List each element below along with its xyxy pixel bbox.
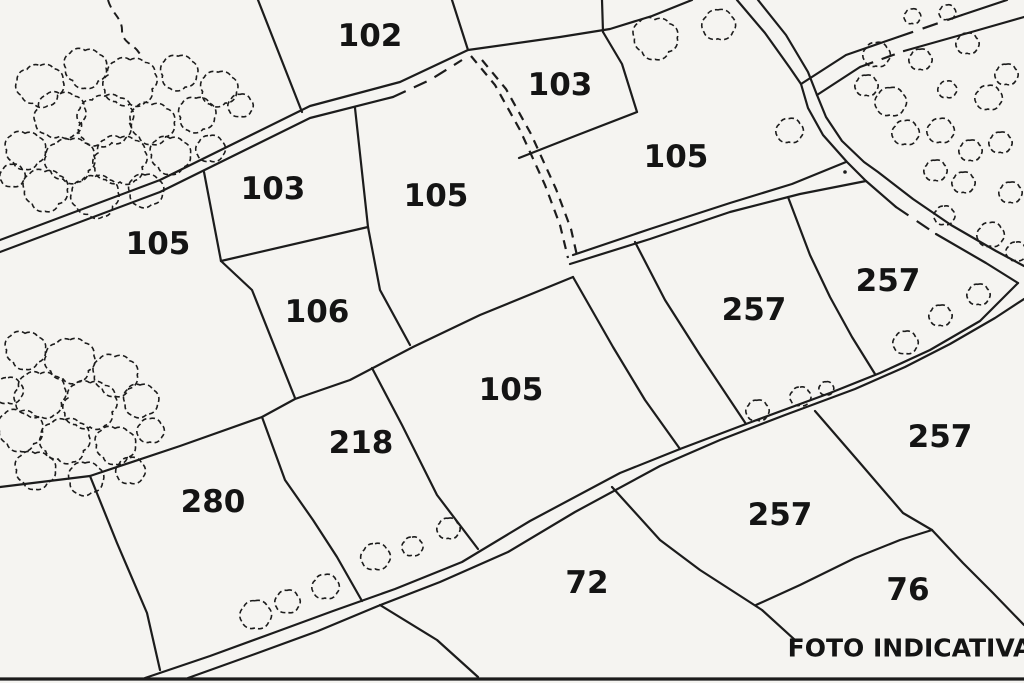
tree-bush-icon [39,418,90,464]
parcel-boundary-line [380,605,478,677]
cadastral-map-drawing: 1021031051031051052572571061052182572802… [0,0,1024,683]
tree-bush-icon [23,169,68,212]
tree-bush-icon [989,132,1012,153]
tree-bush-icon [16,64,64,108]
parcel-boundary-line [603,32,637,112]
tree-bush-icon [137,418,165,443]
tree-bush-icon [875,87,907,116]
tree-bush-icon [44,338,95,384]
tree-bush-icon [892,120,920,145]
cadastral-map: 1021031051031051052572571061052182572802… [0,0,1024,683]
tree-bush-icon [179,97,216,133]
parcel-boundary-line [570,181,866,264]
parcel-label-105: 105 [126,226,191,262]
tree-bush-icon [0,409,43,452]
tree-bush-icon [904,9,921,24]
tree-bush-icon [746,400,769,421]
parcel-boundary-line [758,0,817,95]
parcel-boundary-line [221,227,368,261]
parcel-label-76: 76 [886,572,929,608]
tree-bush-icon [130,102,175,145]
parcel-boundary-line [602,0,603,32]
tree-bush-icon [977,222,1005,247]
parcel-label-105: 105 [644,139,709,175]
tree-bush-icon [64,48,107,88]
tree-bush-icon [819,382,834,395]
dashed-track-line [393,60,462,97]
tree-bush-icon [63,381,117,430]
parcel-boundary-line [801,37,898,84]
tree-bush-icon [228,94,254,117]
tree-bush-icon [312,574,340,599]
tree-bush-icon [909,49,932,70]
tree-bush-icon [927,118,955,143]
tree-bush-icon [196,135,226,162]
tree-bush-icon [95,426,136,464]
footer-note: FOTO INDICATIVA [788,634,1024,663]
parcel-boundary-line [368,227,410,345]
tree-bush-icon [995,64,1018,85]
parcel-label-102: 102 [338,18,403,54]
tree-bush-icon [952,172,975,193]
parcel-boundary-line [801,84,896,207]
parcel-label-103: 103 [528,67,593,103]
parcel-label-280: 280 [181,484,246,520]
parcel-boundary-line [452,0,468,50]
tree-bush-icon [938,81,957,98]
tree-bush-icon [893,331,919,354]
tree-bush-icon [702,9,736,39]
tree-bush-icon [103,58,157,107]
tree-bush-icon [275,590,301,613]
parcel-label-257: 257 [748,497,813,533]
tree-bush-icon [116,457,146,484]
tree-bush-icon [929,305,952,326]
tree-bush-icon [161,55,198,91]
tree-bush-icon [240,600,272,629]
tree-bush-icon [855,75,878,96]
parcel-boundary-line [635,242,746,424]
parcel-label-103: 103 [241,171,306,207]
tree-bush-icon [999,182,1022,203]
tree-bush-icon [776,118,804,143]
tree-bush-icon [959,140,982,161]
tree-bush-icon [361,543,391,570]
parcel-boundary-line [355,108,368,227]
parcel-label-218: 218 [329,425,394,461]
tree-bush-icon [633,17,678,60]
parcel-boundary-line [258,0,302,112]
tree-bush-icon [437,518,460,539]
parcel-label-105: 105 [479,372,544,408]
tree-bush-icon [0,377,24,404]
tree-bush-icon [201,71,238,107]
parcel-boundary-line [204,172,221,261]
parcel-label-72: 72 [565,565,608,601]
tree-bush-icon [975,85,1003,110]
survey-dot [843,170,847,174]
parcel-boundary-line [188,299,1024,678]
tree-bush-icon [956,33,979,54]
tree-bush-icon [128,174,163,208]
tree-bush-icon [402,537,423,556]
parcel-boundary-line [90,476,160,670]
tree-bush-icon [924,160,947,181]
parcel-boundary-line [962,0,1007,15]
tree-bush-icon [0,164,25,187]
parcel-label-257: 257 [856,263,921,299]
parcel-label-257: 257 [722,292,787,328]
tree-bush-icon [863,42,891,67]
parcel-boundary-line [573,277,680,449]
parcel-label-105: 105 [404,178,469,214]
dashed-track-line [108,0,143,58]
parcel-boundary-line [0,97,393,252]
tree-bush-icon [967,284,990,305]
parcel-boundary-line [817,67,860,95]
tree-bush-icon [77,94,134,147]
parcel-label-106: 106 [285,294,350,330]
parcel-boundary-line [817,95,1024,266]
tree-bush-icon [93,354,138,397]
parcel-label-257: 257 [908,419,973,455]
parcel-boundary-line [519,112,637,158]
parcel-boundary-line [145,283,1018,678]
tree-bush-icon [5,331,46,369]
parcel-boundary-line [936,234,1018,283]
tree-bush-icon [939,5,956,20]
